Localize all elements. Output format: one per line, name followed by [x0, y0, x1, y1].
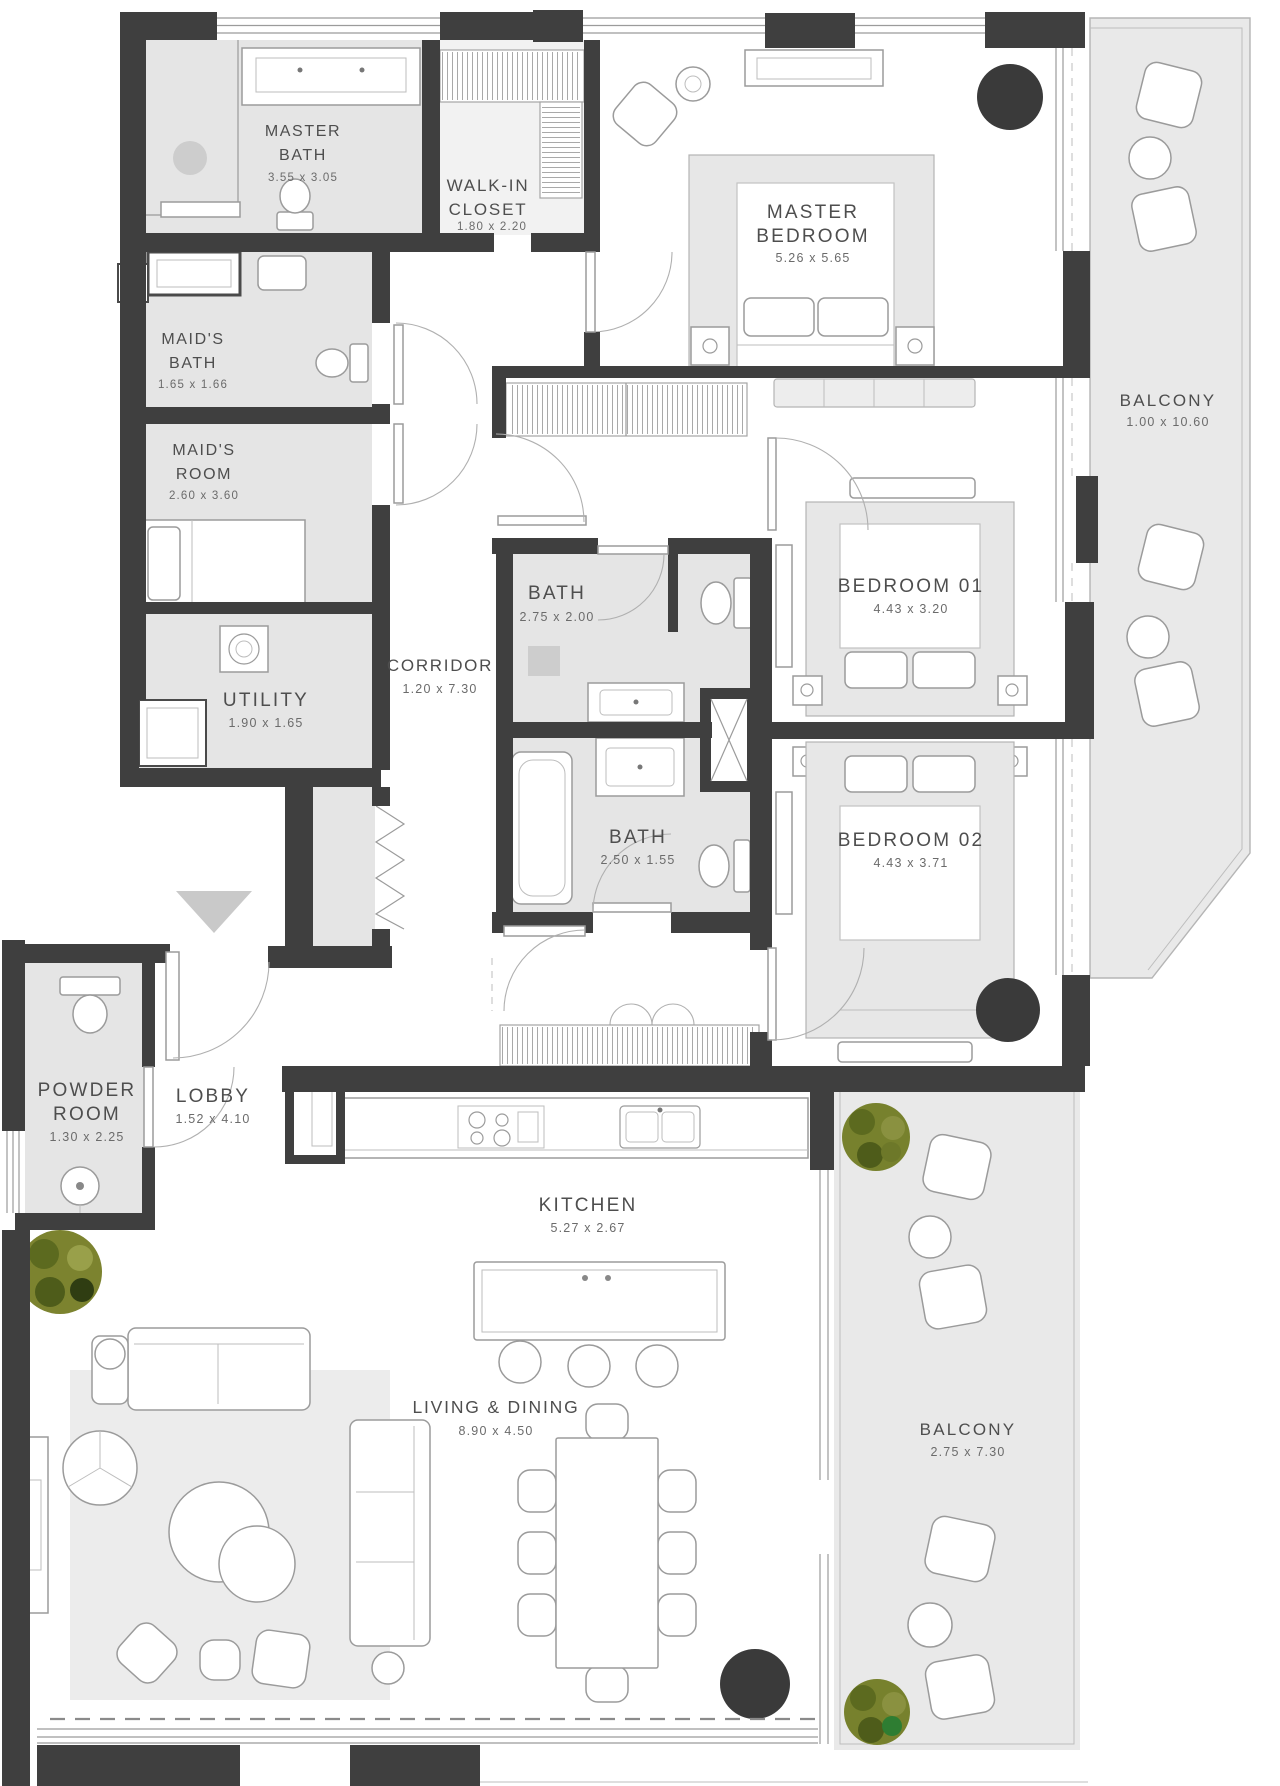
svg-text:2.75 x 2.00: 2.75 x 2.00: [519, 610, 594, 624]
svg-text:LOBBY: LOBBY: [176, 1086, 250, 1107]
svg-text:MAID'S: MAID'S: [161, 331, 224, 348]
svg-text:WALK-IN: WALK-IN: [447, 176, 530, 195]
svg-text:CLOSET: CLOSET: [449, 200, 528, 219]
svg-text:1.90 x 1.65: 1.90 x 1.65: [228, 716, 303, 730]
svg-text:BEDROOM 02: BEDROOM 02: [838, 830, 985, 851]
svg-text:5.26 x 5.65: 5.26 x 5.65: [775, 251, 850, 265]
svg-text:1.65 x 1.66: 1.65 x 1.66: [158, 379, 228, 391]
svg-text:BATH: BATH: [528, 583, 586, 604]
svg-text:4.43 x 3.71: 4.43 x 3.71: [873, 856, 948, 870]
svg-text:POWDER: POWDER: [38, 1080, 137, 1101]
svg-text:MASTER: MASTER: [767, 202, 859, 223]
svg-text:LIVING & DINING: LIVING & DINING: [412, 1397, 579, 1417]
svg-text:MAID'S: MAID'S: [172, 442, 235, 459]
svg-text:MASTER: MASTER: [265, 123, 341, 140]
svg-text:BEDROOM: BEDROOM: [756, 226, 870, 247]
svg-text:BATH: BATH: [279, 147, 327, 164]
svg-text:1.20 x 7.30: 1.20 x 7.30: [402, 682, 477, 696]
svg-text:1.00 x 10.60: 1.00 x 10.60: [1126, 415, 1209, 429]
svg-text:BALCONY: BALCONY: [920, 1420, 1017, 1439]
svg-text:8.90 x 4.50: 8.90 x 4.50: [458, 1424, 533, 1438]
svg-text:2.50 x 1.55: 2.50 x 1.55: [600, 853, 675, 867]
svg-text:2.60 x 3.60: 2.60 x 3.60: [169, 490, 239, 502]
svg-text:1.52 x 4.10: 1.52 x 4.10: [175, 1112, 250, 1126]
svg-text:BEDROOM 01: BEDROOM 01: [838, 576, 985, 597]
svg-text:3.55 x 3.05: 3.55 x 3.05: [268, 172, 338, 184]
svg-text:5.27 x 2.67: 5.27 x 2.67: [550, 1221, 625, 1235]
svg-text:BALCONY: BALCONY: [1120, 391, 1217, 410]
svg-text:KITCHEN: KITCHEN: [539, 1195, 638, 1216]
svg-text:BATH: BATH: [609, 827, 667, 848]
svg-text:1.80 x 2.20: 1.80 x 2.20: [457, 221, 527, 233]
svg-text:4.43 x 3.20: 4.43 x 3.20: [873, 602, 948, 616]
svg-text:ROOM: ROOM: [53, 1104, 121, 1125]
svg-text:CORRIDOR: CORRIDOR: [387, 656, 493, 675]
svg-text:UTILITY: UTILITY: [223, 690, 309, 711]
svg-text:2.75 x 7.30: 2.75 x 7.30: [930, 1445, 1005, 1459]
svg-text:ROOM: ROOM: [176, 466, 232, 483]
svg-text:1.30 x 2.25: 1.30 x 2.25: [49, 1130, 124, 1144]
svg-text:BATH: BATH: [169, 355, 217, 372]
